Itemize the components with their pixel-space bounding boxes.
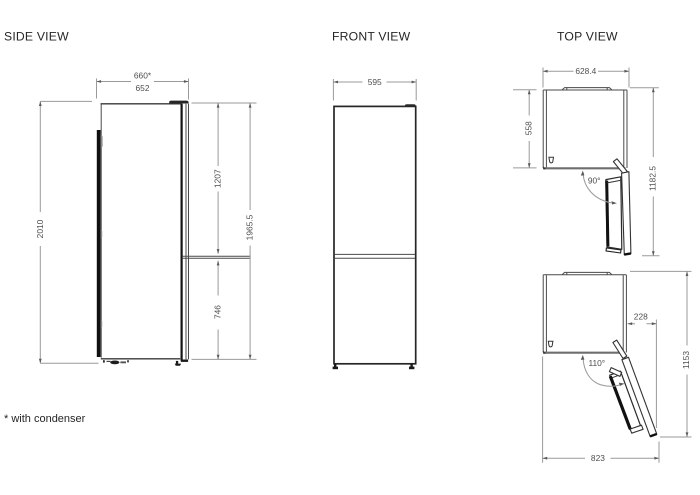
svg-text:2010: 2010 xyxy=(35,219,45,238)
svg-text:1965.5: 1965.5 xyxy=(244,214,254,240)
svg-text:SIDE VIEW: SIDE VIEW xyxy=(4,30,69,44)
svg-text:TOP VIEW: TOP VIEW xyxy=(557,30,618,44)
svg-text:628.4: 628.4 xyxy=(575,66,596,76)
svg-text:* with condenser: * with condenser xyxy=(4,413,86,425)
svg-text:746: 746 xyxy=(212,305,222,319)
svg-text:660*: 660* xyxy=(134,70,152,80)
svg-text:558: 558 xyxy=(523,121,533,135)
svg-text:1153: 1153 xyxy=(681,351,691,369)
svg-text:228: 228 xyxy=(634,312,648,322)
svg-text:595: 595 xyxy=(368,77,382,87)
svg-text:90°: 90° xyxy=(588,175,601,185)
svg-text:1207: 1207 xyxy=(212,169,222,188)
svg-text:FRONT VIEW: FRONT VIEW xyxy=(332,30,411,44)
svg-text:1182.5: 1182.5 xyxy=(647,166,657,191)
svg-text:652: 652 xyxy=(136,83,150,93)
svg-text:823: 823 xyxy=(591,453,605,463)
svg-text:110°: 110° xyxy=(588,358,605,368)
